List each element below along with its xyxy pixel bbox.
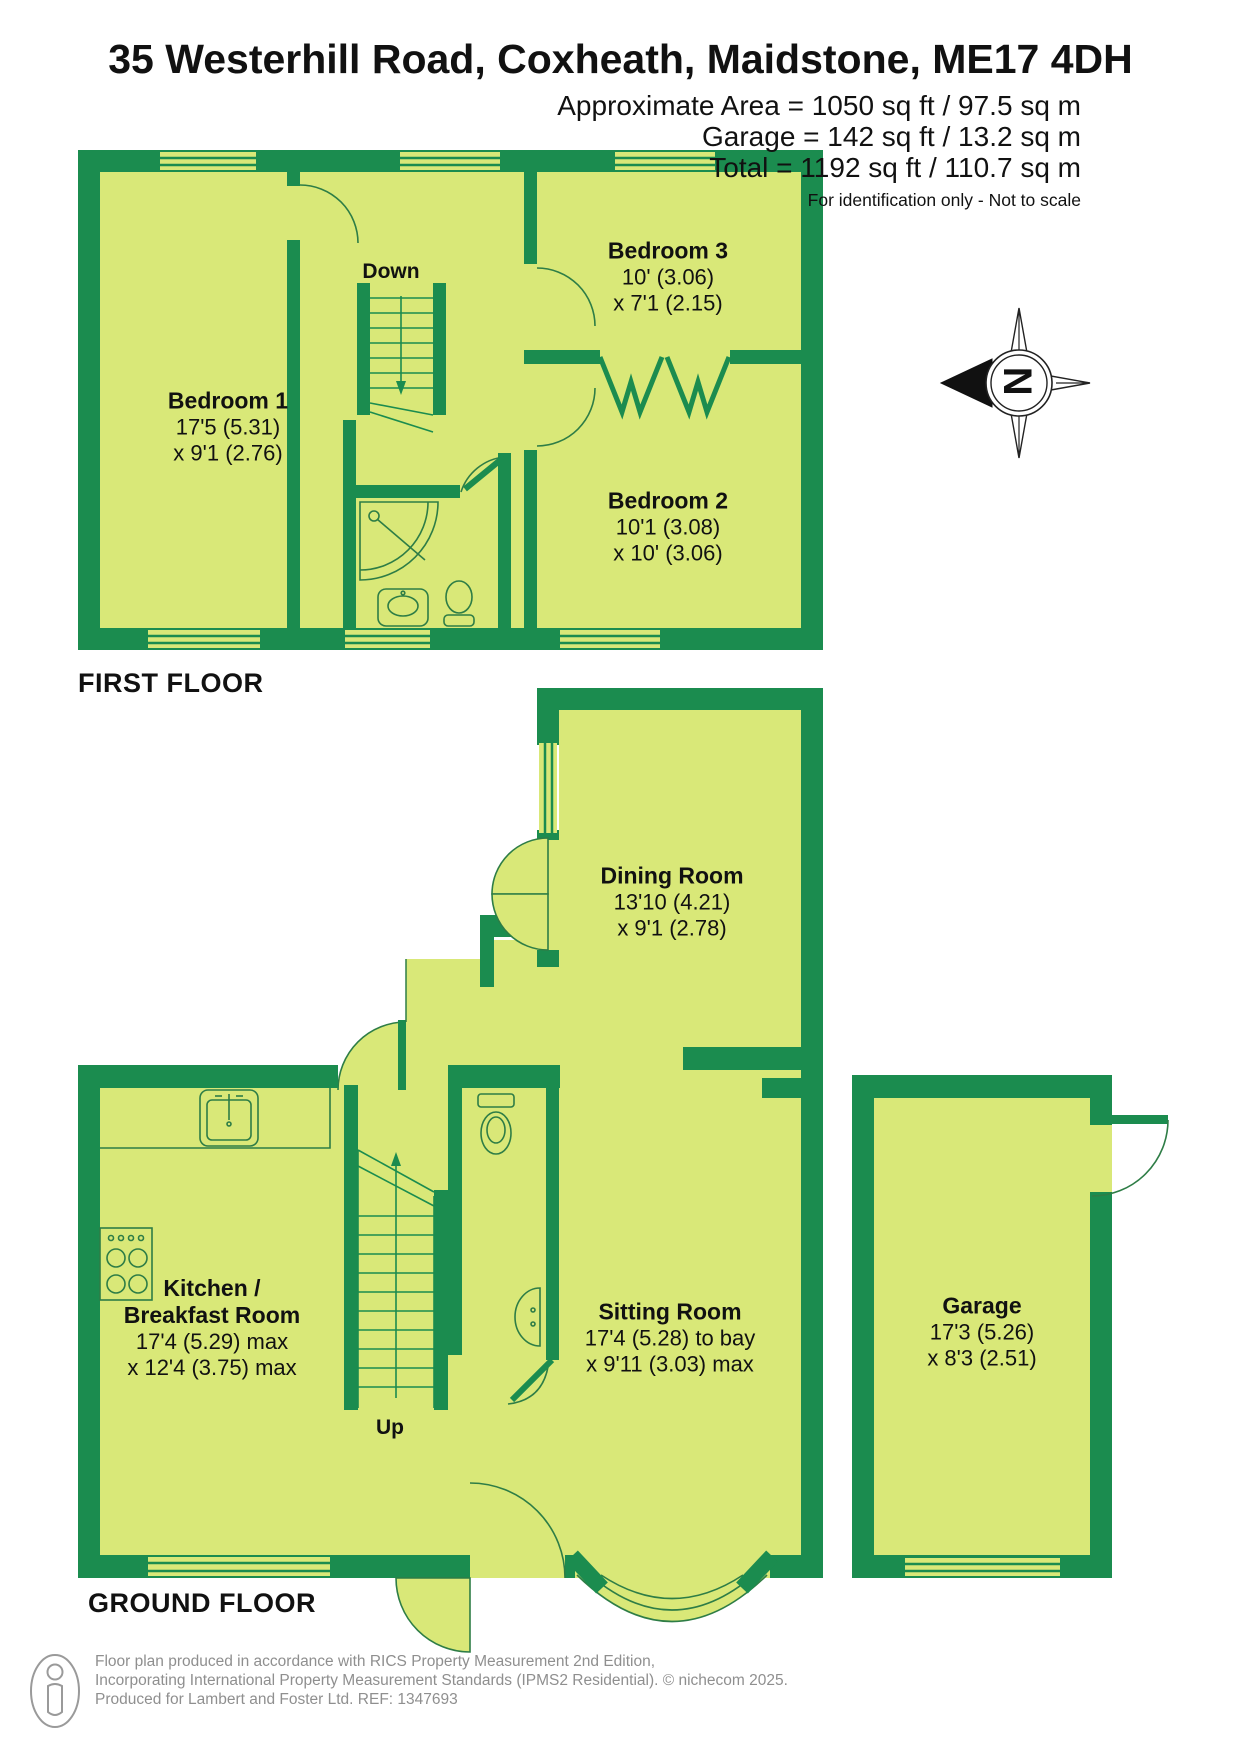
bedroom2-label: Bedroom 2 10'1 (3.08) x 10' (3.06) <box>608 487 728 566</box>
bay-window <box>572 1555 772 1622</box>
stairs-up-label: Up <box>376 1416 404 1440</box>
toilet <box>444 581 474 626</box>
dining-room-label: Dining Room 13'10 (4.21) x 9'1 (2.78) <box>600 862 743 941</box>
room-dim: x 7'1 (2.15) <box>608 291 728 317</box>
footer-disclaimer: Floor plan produced in accordance with R… <box>95 1652 788 1709</box>
sink <box>378 589 428 626</box>
room-name: Breakfast Room <box>124 1302 300 1329</box>
window-icon <box>539 743 557 833</box>
door-leaf <box>1092 1115 1168 1124</box>
footer-line: Floor plan produced in accordance with R… <box>95 1652 788 1671</box>
window-icon <box>148 1557 330 1576</box>
stairs-down-label: Down <box>362 260 419 284</box>
room-dim: x 9'1 (2.78) <box>600 916 743 942</box>
footer-line: Produced for Lambert and Foster Ltd. REF… <box>95 1690 788 1709</box>
kitchen-label: Kitchen / Breakfast Room 17'4 (5.29) max… <box>124 1275 300 1381</box>
room-dim: 17'3 (5.26) <box>927 1320 1036 1346</box>
ground-floor-label: GROUND FLOOR <box>88 1588 316 1619</box>
footer-line: Incorporating International Property Mea… <box>95 1671 788 1690</box>
room-dim: x 9'1 (2.76) <box>168 441 288 467</box>
room-name: Bedroom 3 <box>608 237 728 264</box>
area-summary: Approximate Area = 1050 sq ft / 97.5 sq … <box>557 90 1081 211</box>
compass-north-label: N <box>997 367 1042 396</box>
room-dim: x 9'11 (3.03) max <box>585 1352 756 1378</box>
room-name: Bedroom 2 <box>608 487 728 514</box>
front-door-swing <box>396 1578 470 1652</box>
front-door-opening <box>470 1555 565 1578</box>
room-dim: 13'10 (4.21) <box>600 890 743 916</box>
room-dim: 17'5 (5.31) <box>168 415 288 441</box>
room-name: Sitting Room <box>585 1298 756 1325</box>
room-dim: 10' (3.06) <box>608 265 728 291</box>
approximate-area: Approximate Area = 1050 sq ft / 97.5 sq … <box>557 90 1081 121</box>
room-name: Garage <box>927 1292 1036 1319</box>
room-dim: x 10' (3.06) <box>608 541 728 567</box>
garage-label: Garage 17'3 (5.26) x 8'3 (2.51) <box>927 1292 1036 1371</box>
room-name: Dining Room <box>600 862 743 889</box>
toilet <box>478 1094 514 1154</box>
room-dim: 10'1 (3.08) <box>608 515 728 541</box>
bedroom1-label: Bedroom 1 17'5 (5.31) x 9'1 (2.76) <box>168 387 288 466</box>
room-name: Kitchen / <box>124 1275 300 1302</box>
door-leaf <box>398 1020 406 1090</box>
window-icon <box>148 630 660 648</box>
bedroom3-label: Bedroom 3 10' (3.06) x 7'1 (2.15) <box>608 237 728 316</box>
room-dim: 17'4 (5.28) to bay <box>585 1326 756 1352</box>
total-area: Total = 1192 sq ft / 110.7 sq m <box>557 152 1081 183</box>
window-icon <box>905 1558 1060 1576</box>
person-icon <box>31 1655 79 1727</box>
scale-disclaimer: For identification only - Not to scale <box>557 190 1081 211</box>
ground-floor-plan <box>78 688 1168 1652</box>
room-dim: x 12'4 (3.75) max <box>124 1355 300 1381</box>
door-swing <box>338 1022 406 1090</box>
sitting-room-label: Sitting Room 17'4 (5.28) to bay x 9'11 (… <box>585 1298 756 1377</box>
kitchen-sink <box>200 1090 258 1146</box>
room-dim: 17'4 (5.29) max <box>124 1329 300 1355</box>
room-dim: x 8'3 (2.51) <box>927 1346 1036 1372</box>
first-floor-label: FIRST FLOOR <box>78 668 263 699</box>
page-title: 35 Westerhill Road, Coxheath, Maidstone,… <box>108 36 1132 83</box>
garage-area: Garage = 142 sq ft / 13.2 sq m <box>557 121 1081 152</box>
room-name: Bedroom 1 <box>168 387 288 414</box>
